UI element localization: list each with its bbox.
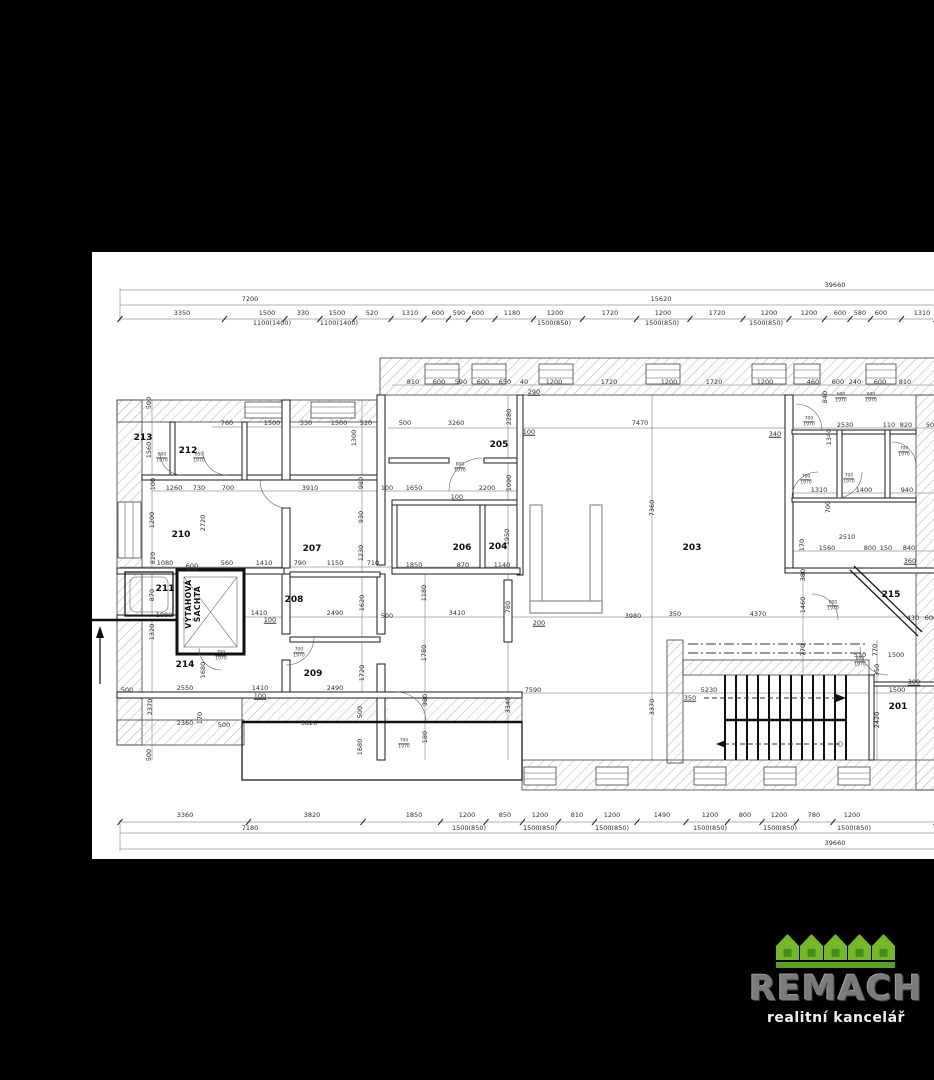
dimension-label-vertical: 500 [146,397,153,409]
dimension-label: 2360 [177,720,194,727]
dimension-label: 810 [899,379,911,386]
dimension-label: 580 [854,310,866,317]
room-label: 203 [683,543,702,553]
dimension-label: 150 [880,545,892,552]
dimension-label: 100 [264,617,276,624]
dimension-label-vertical: 100 [150,478,157,490]
dimension-label: 330 [297,310,309,317]
dimension-label: 600 [472,310,484,317]
dimension-label: 3820 [304,812,321,819]
dimension-label: 1720 [709,310,726,317]
dimension-label-vertical: 1560 [146,442,153,459]
dimension-label: 1200 [761,310,778,317]
dimension-label: 350 [684,695,696,702]
door-size-tag: 6001970 [835,392,846,403]
dimension-label: 1100(1400) [320,320,358,327]
dimension-label: 340 [769,431,781,438]
dimension-label: 1560 [819,545,836,552]
dimension-label: 800 [739,812,751,819]
dimension-label-vertical: 770 [800,644,807,656]
dimension-label: 1490 [654,812,671,819]
dimension-label-vertical: 1090 [506,475,513,492]
dimension-label: 360 [904,558,916,565]
dimension-label: 500 [399,420,411,427]
dimension-label-vertical: 700 [825,501,832,513]
door-size-tag: 8001970 [854,656,865,667]
room-label: 206 [453,543,472,553]
dimension-label: 1200 [546,379,563,386]
dimension-label: 39660 [825,840,846,847]
dimension-label: 600 [834,310,846,317]
dimension-label: 110 [883,422,895,429]
dimension-label: 840 [903,545,915,552]
door-size-tag: 7001970 [398,738,409,749]
logo-brand: REMACH [742,972,930,1007]
dimension-label: 2510 [839,534,856,541]
dimension-label-vertical: 500 [146,749,153,761]
room-label: 207 [303,544,322,554]
dimension-label: 1200 [532,812,549,819]
dimension-label: 1850 [406,812,423,819]
remach-houses-icon [775,930,897,970]
door-size-tag: 7001970 [800,474,811,485]
dimension-label: 1720 [706,379,723,386]
dimension-label: 1500 [329,310,346,317]
dimension-label: 1200 [702,812,719,819]
dimension-label: 2530 [837,422,854,429]
dimension-label: 7470 [632,420,649,427]
door-size-tag: 7001970 [898,446,909,457]
room-label: 209 [304,669,323,679]
floor-plan-paper: 3966072001562033501500330150052013106005… [90,252,934,859]
dimension-label: 870 [457,562,469,569]
dimension-label-vertical: 170 [799,539,806,551]
dimension-label: 1200 [757,379,774,386]
logo-subtitle: realitní kancelář [742,1010,930,1026]
dimension-label: 39660 [825,282,846,289]
dimension-label-vertical: 350 [874,664,881,676]
dimension-label: 1500 [259,310,276,317]
dimension-label: 1200 [604,812,621,819]
dimension-label: 1310 [811,487,828,494]
dimension-label: 3360 [177,812,194,819]
dimension-label: 2490 [327,685,344,692]
shaft-label-line1: VÝTAHOVÁ [184,579,193,628]
dimension-label: 1200 [547,310,564,317]
dimension-label: 1500 [264,420,281,427]
dimension-label: 1200 [801,310,818,317]
houses-row [776,934,895,968]
dimension-label-vertical: 380 [800,569,807,581]
dimension-label: 1500 [889,687,906,694]
dimension-label: 1410 [252,685,269,692]
dimension-label: 600 [925,615,934,622]
room-label: 214 [176,660,195,670]
dimension-label: 600 [433,379,445,386]
dimension-label: 600 [875,310,887,317]
dimension-label: 800 [864,545,876,552]
dimension-label: 1200 [661,379,678,386]
dimension-label: 500 [121,687,133,694]
dimension-label: 290 [528,389,540,396]
dimension-label: 3820 [301,720,318,727]
room-label: 205 [490,440,509,450]
dimension-label: 600 [477,379,489,386]
dimension-label: 520 [360,420,372,427]
dimension-label-vertical: 780 [505,601,512,613]
elevator-shaft-label: VÝTAHOVÁ ŠACHTA [184,579,202,628]
dimension-label: 1500 [888,652,905,659]
dimension-label: 790 [294,560,306,567]
dimension-label-vertical: 1200 [149,512,156,529]
door-size-tag: 6001970 [865,392,876,403]
dimension-label: 1200 [655,310,672,317]
dimension-label: 760 [221,420,233,427]
dimension-label-vertical: 3340 [505,697,512,714]
dimension-label-vertical: 500 [357,706,364,718]
dimension-label: 1260 [166,485,183,492]
dimension-label-vertical: 2370 [147,699,154,716]
room-label: 204 [489,542,508,552]
dimension-label: 1500(850) [763,825,797,832]
dimension-label: 1140 [494,562,511,569]
door-size-tag: 7001970 [215,650,226,661]
dimension-label-vertical: 1680 [357,739,364,756]
dimension-label-vertical: 1460 [800,597,807,614]
dimension-label: 1500(850) [595,825,629,832]
door-size-tag: 6001970 [156,452,167,463]
door-size-tag: 8001970 [454,462,465,473]
dimension-label: 1500 [331,420,348,427]
dimension-label: 1200 [459,812,476,819]
dimension-label: 810 [571,812,583,819]
dimension-label: 850 [499,812,511,819]
door-size-tag: 7001970 [293,647,304,658]
dimension-label: 3260 [448,420,465,427]
dimension-label: 1310 [914,310,931,317]
dimension-label: 1720 [601,379,618,386]
dimension-label: 40 [520,379,528,386]
dimension-label: 600 [186,563,198,570]
dimension-label-vertical: 1620 [359,595,366,612]
dimension-label: 650 [499,379,511,386]
dimension-label-vertical: 1680 [200,662,207,679]
dimension-label: 430 [907,615,919,622]
dimension-label: 1180 [504,310,521,317]
dimension-label: 3980 [625,613,642,620]
dimension-label-vertical: 1230 [358,545,365,562]
door-size-tag: 7001970 [803,416,814,427]
dimension-label: 4370 [750,611,767,618]
dimension-label-vertical: 980 [422,694,429,706]
dimension-label: 1850 [406,562,423,569]
room-label: 215 [882,590,901,600]
shaft-label-line2: ŠACHTA [193,579,202,628]
dimension-label-vertical: 1780 [421,645,428,662]
room-label: 211 [156,584,175,594]
dimension-label: 1080 [157,560,174,567]
dimension-label-vertical: 180 [422,731,429,743]
dimension-label: 200 [533,620,545,627]
dimension-label: 2550 [177,685,194,692]
dimension-label-vertical: 980 [358,477,365,489]
dimension-label: 520 [366,310,378,317]
dimension-label: 7590 [525,687,542,694]
dimension-label-vertical: 2420 [874,712,881,729]
dimension-label: 15620 [651,296,672,303]
dimension-label: 1500(850) [452,825,486,832]
dimension-label: 1500(850) [837,825,871,832]
dimension-label-vertical: 1300 [351,430,358,447]
dimension-label: 780 [808,812,820,819]
dimension-label: 590 [453,310,465,317]
door-size-tag: 6501970 [193,452,204,463]
dimension-label-vertical: 3370 [649,699,656,716]
dimension-label: 1150 [327,560,344,567]
dimension-label: 500 [218,722,230,729]
door-size-tag: 7001970 [843,473,854,484]
dimension-label-vertical: 770 [872,644,879,656]
remach-logo: REMACH realitní kancelář [742,930,930,1026]
dimension-label: 3910 [302,485,319,492]
dimension-label-vertical: 170 [197,712,204,724]
dimension-label: 7200 [242,296,259,303]
dimension-label: 50 [926,422,934,429]
dimension-label-vertical: 840 [822,391,829,403]
dimension-label: 1650 [406,485,423,492]
dimension-label: 1100(1400) [253,320,291,327]
dimension-label: 1500(850) [645,320,679,327]
room-label: 201 [889,702,908,712]
dimension-label: 350 [669,611,681,618]
dimension-label: 2490 [327,610,344,617]
dimension-label-vertical: 1180 [421,585,428,602]
dimension-label: 100 [381,485,393,492]
dimension-label: 700 [222,485,234,492]
dimension-label: 730 [193,485,205,492]
dimension-label: 810 [407,379,419,386]
dimension-label: 330 [300,420,312,427]
dimension-label: 940 [901,487,913,494]
dimension-label: 1200 [771,812,788,819]
dimension-label: 100 [254,693,266,700]
dimension-label: 7180 [242,825,259,832]
plan-labels-layer: 3966072001562033501500330150052013106005… [92,252,934,859]
dimension-label-vertical: 870 [149,589,156,601]
dimension-label: 560 [221,560,233,567]
dimension-label: 100 [451,494,463,501]
dimension-label-vertical: 1340 [826,429,833,446]
dimension-label: 1500(850) [537,320,571,327]
dimension-label: 1400 [856,487,873,494]
dimension-label-vertical: 2720 [200,515,207,532]
dimension-label: 1500(850) [523,825,557,832]
dimension-label-vertical: 820 [150,552,157,564]
dimension-label: 1080 [156,612,173,619]
dimension-label: 710 [367,560,379,567]
dimension-label: 1720 [602,310,619,317]
dimension-label: 600 [874,379,886,386]
room-label: 213 [134,433,153,443]
dimension-label: 3350 [174,310,191,317]
door-size-tag: 8001970 [827,600,838,611]
dimension-label-vertical: 930 [358,511,365,523]
dimension-label-vertical: 2280 [506,409,513,426]
dimension-label-vertical: 7360 [649,500,656,517]
dimension-label: 460 [807,379,819,386]
dimension-label: 300 [908,679,920,686]
dimension-label: 590 [455,379,467,386]
dimension-label: 3410 [449,610,466,617]
dimension-label: 1500(850) [693,825,727,832]
dimension-label: 240 [849,379,861,386]
dimension-label: 1310 [402,310,419,317]
dimension-label: 1500(850) [749,320,783,327]
dimension-label-vertical: 1720 [359,665,366,682]
dimension-label: 5230 [701,687,718,694]
dimension-label-vertical: 1320 [149,624,156,641]
screenshot-root: 3966072001562033501500330150052013106005… [0,0,934,1080]
dimension-label: 100 [523,429,535,436]
dimension-label: 500 [381,613,393,620]
dimension-label: 600 [432,310,444,317]
dimension-label: 600 [832,379,844,386]
room-label: 208 [285,595,304,605]
dimension-label: 1410 [256,560,273,567]
dimension-label: 2200 [479,485,496,492]
dimension-label: 820 [900,422,912,429]
dimension-label: 1200 [844,812,861,819]
room-label: 210 [172,530,191,540]
